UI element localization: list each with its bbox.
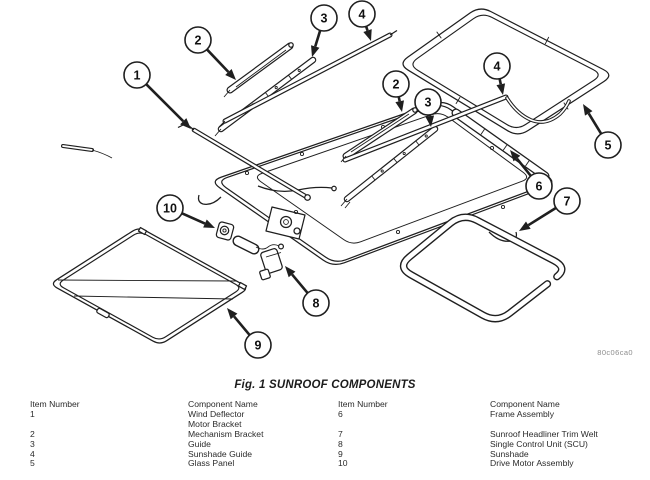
item-number: 10 bbox=[338, 459, 490, 469]
figure-code: 80c06ca0 bbox=[597, 348, 633, 357]
item-number: 7 bbox=[338, 430, 490, 440]
callout-5: 5 bbox=[583, 104, 621, 158]
callout-2: 2 bbox=[383, 71, 409, 112]
item-number: 1 bbox=[30, 410, 188, 430]
frame-assembly-part bbox=[199, 103, 552, 265]
svg-text:5: 5 bbox=[605, 138, 612, 152]
svg-text:9: 9 bbox=[255, 338, 262, 352]
figure-caption: Fig. 1 SUNROOF COMPONENTS bbox=[0, 379, 650, 391]
component-name: Drive Motor Assembly bbox=[490, 459, 648, 469]
svg-text:4: 4 bbox=[359, 7, 366, 21]
callout-10: 10 bbox=[157, 195, 215, 228]
component-name: Glass Panel bbox=[188, 459, 338, 469]
item-number: 8 bbox=[338, 440, 490, 450]
svg-text:1: 1 bbox=[134, 68, 141, 82]
scu-part bbox=[259, 248, 283, 280]
sunroof-exploded-diagram: 12342345678910 bbox=[0, 0, 650, 375]
callout-8: 8 bbox=[285, 266, 329, 316]
svg-text:8: 8 bbox=[313, 296, 320, 310]
trim-welt-part bbox=[404, 217, 562, 318]
svg-text:2: 2 bbox=[195, 33, 202, 47]
callout-4: 4 bbox=[349, 1, 375, 41]
svg-text:4: 4 bbox=[494, 59, 501, 73]
component-name: Frame Assembly bbox=[490, 410, 648, 430]
svg-text:7: 7 bbox=[564, 194, 571, 208]
component-name: Wind Deflector Motor Bracket bbox=[188, 410, 338, 430]
callout-2: 2 bbox=[185, 27, 236, 80]
item-number: 4 bbox=[30, 450, 188, 460]
item-number: 6 bbox=[338, 410, 490, 430]
svg-text:3: 3 bbox=[425, 95, 432, 109]
item-number: 5 bbox=[30, 459, 188, 469]
callout-9: 9 bbox=[227, 308, 271, 358]
manual-page: 12342345678910 80c06ca0 Fig. 1 SUNROOF C… bbox=[0, 0, 650, 480]
parts-table: Item NumberComponent NameItem NumberComp… bbox=[30, 400, 648, 469]
svg-text:10: 10 bbox=[163, 201, 177, 215]
item-number: 3 bbox=[30, 440, 188, 450]
column-header: Item Number bbox=[30, 400, 188, 410]
svg-text:6: 6 bbox=[536, 179, 543, 193]
svg-text:2: 2 bbox=[393, 77, 400, 91]
sunshade-part bbox=[53, 228, 246, 343]
item-number: 9 bbox=[338, 450, 490, 460]
column-header: Item Number bbox=[338, 400, 490, 410]
callout-3: 3 bbox=[311, 5, 337, 57]
svg-text:3: 3 bbox=[321, 11, 328, 25]
callout-1: 1 bbox=[124, 62, 191, 129]
item-number: 2 bbox=[30, 430, 188, 440]
